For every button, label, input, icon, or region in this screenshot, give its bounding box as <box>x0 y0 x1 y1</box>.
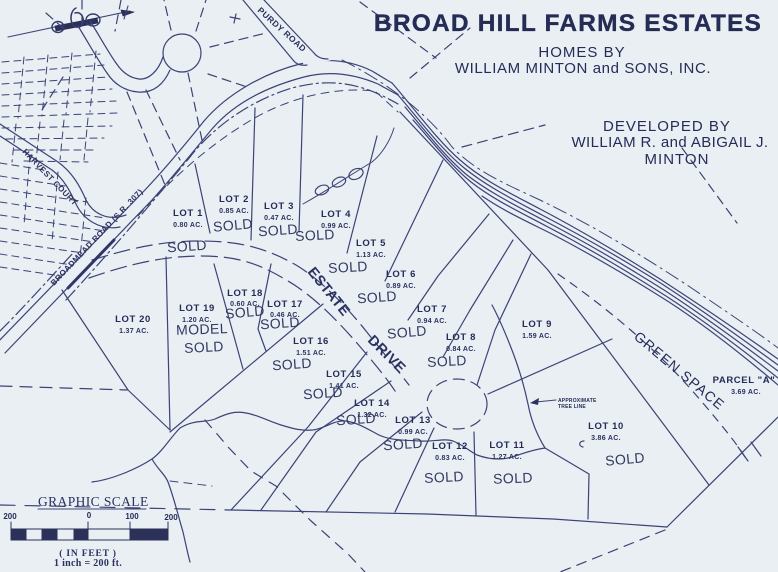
svg-text:LOT 18: LOT 18 <box>227 288 263 299</box>
svg-text:SOLD: SOLD <box>303 384 344 403</box>
svg-text:SOLD: SOLD <box>167 237 208 256</box>
svg-text:LOT 13: LOT 13 <box>395 415 431 426</box>
svg-text:100: 100 <box>125 512 139 521</box>
svg-text:LOT 2: LOT 2 <box>219 194 249 205</box>
svg-text:200: 200 <box>3 512 17 521</box>
svg-text:WILLIAM MINTON and SONS, INC.: WILLIAM MINTON and SONS, INC. <box>455 60 711 77</box>
svg-text:LOT 8: LOT 8 <box>446 332 476 343</box>
svg-text:1 inch = 200 ft.: 1 inch = 200 ft. <box>54 558 122 569</box>
svg-text:WILLIAM R. and ABIGAIL J.: WILLIAM R. and ABIGAIL J. <box>571 134 768 151</box>
svg-text:SOLD: SOLD <box>184 338 225 356</box>
svg-text:GRAPHIC SCALE: GRAPHIC SCALE <box>38 494 149 509</box>
svg-text:0: 0 <box>87 511 92 520</box>
svg-text:LOT 17: LOT 17 <box>267 299 303 310</box>
svg-text:SOLD: SOLD <box>295 226 336 244</box>
svg-text:SOLD: SOLD <box>272 355 313 374</box>
svg-text:1.59 AC.: 1.59 AC. <box>522 333 552 340</box>
svg-text:MODEL: MODEL <box>176 320 228 338</box>
svg-text:LOT 7: LOT 7 <box>417 304 447 315</box>
svg-text:SOLD: SOLD <box>383 435 424 454</box>
svg-text:LOT 10: LOT 10 <box>588 421 624 432</box>
svg-text:LOT 1: LOT 1 <box>173 208 203 219</box>
svg-text:SOLD: SOLD <box>493 469 533 486</box>
svg-text:MINTON: MINTON <box>645 151 710 168</box>
svg-text:SOLD: SOLD <box>328 258 369 276</box>
svg-text:SOLD: SOLD <box>336 410 377 429</box>
svg-text:LOT 6: LOT 6 <box>386 269 416 280</box>
svg-text:LOT 4: LOT 4 <box>321 209 351 220</box>
svg-text:LOT 15: LOT 15 <box>326 369 362 380</box>
svg-text:0.80 AC.: 0.80 AC. <box>173 222 203 229</box>
svg-text:3.86 AC.: 3.86 AC. <box>591 435 621 442</box>
svg-text:SOLD: SOLD <box>427 352 468 370</box>
svg-text:PARCEL "A": PARCEL "A" <box>713 375 776 386</box>
svg-text:DEVELOPED BY: DEVELOPED BY <box>603 118 731 135</box>
svg-text:SOLD: SOLD <box>258 221 299 240</box>
svg-text:1.37 AC.: 1.37 AC. <box>119 328 149 335</box>
svg-text:LOT 11: LOT 11 <box>489 440 524 451</box>
svg-text:LOT 20: LOT 20 <box>115 314 151 325</box>
svg-text:LOT 5: LOT 5 <box>356 238 386 249</box>
svg-text:SOLD: SOLD <box>357 288 398 307</box>
svg-text:LOT 16: LOT 16 <box>293 336 329 347</box>
svg-text:0.85 AC.: 0.85 AC. <box>219 208 249 215</box>
svg-text:LOT 12: LOT 12 <box>432 441 468 452</box>
svg-text:LOT 3: LOT 3 <box>264 201 294 212</box>
svg-text:LOT 9: LOT 9 <box>522 319 552 330</box>
svg-text:TREE LINE: TREE LINE <box>558 404 586 410</box>
svg-text:3.69 AC.: 3.69 AC. <box>731 389 761 396</box>
svg-text:SOLD: SOLD <box>424 468 465 486</box>
svg-text:LOT 19: LOT 19 <box>179 303 215 314</box>
svg-text:0.83 AC.: 0.83 AC. <box>435 455 465 462</box>
svg-text:1.27 AC.: 1.27 AC. <box>492 454 522 461</box>
svg-text:LOT 14: LOT 14 <box>354 398 390 409</box>
svg-text:BROAD HILL FARMS ESTATES: BROAD HILL FARMS ESTATES <box>374 10 762 37</box>
svg-text:HOMES BY: HOMES BY <box>538 44 625 61</box>
svg-text:200: 200 <box>164 513 178 522</box>
svg-text:SOLD: SOLD <box>260 314 301 333</box>
